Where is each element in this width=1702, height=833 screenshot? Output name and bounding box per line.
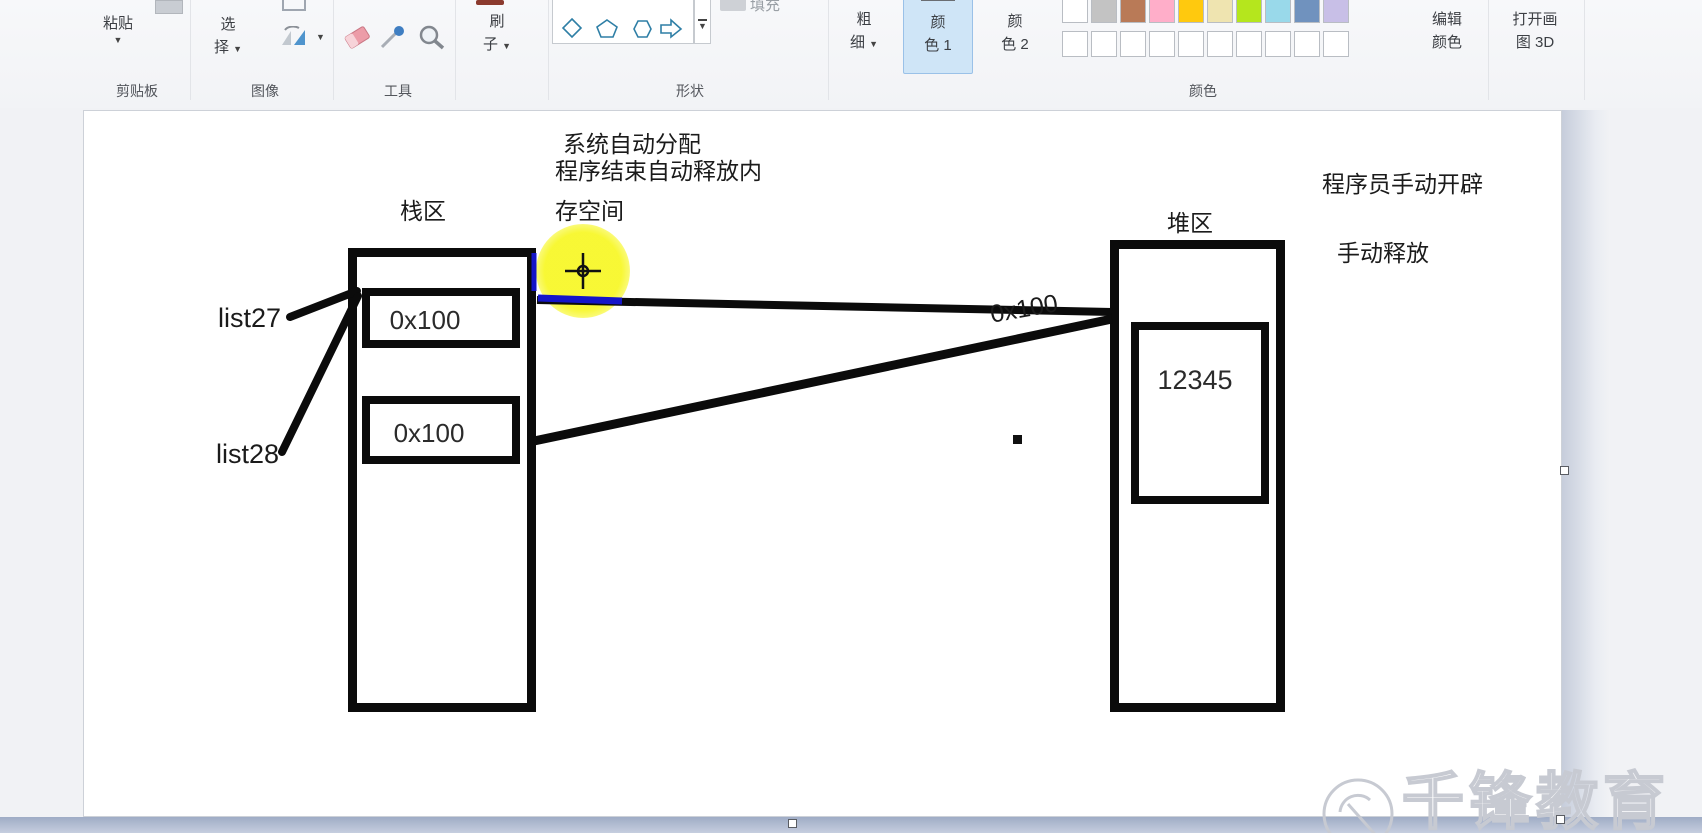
select-dropdown-arrow[interactable]: ▼ xyxy=(233,44,242,54)
palette-swatch[interactable] xyxy=(1178,31,1204,57)
palette-swatch[interactable] xyxy=(1091,0,1117,23)
canvas-resize-handle-bottom[interactable] xyxy=(788,819,797,828)
var-list28-label: list28 xyxy=(216,439,279,470)
palette-swatch[interactable] xyxy=(1236,31,1262,57)
group-separator xyxy=(1584,0,1585,100)
size-dropdown-arrow[interactable]: ▼ xyxy=(869,39,878,49)
palette-swatch[interactable] xyxy=(1236,0,1262,23)
paint-window: 粘贴 ▼ 剪贴板 选 择 ▼ ▼ 图像 xyxy=(0,0,1702,833)
palette-swatch[interactable] xyxy=(1207,0,1233,23)
color1-chip xyxy=(921,0,955,1)
shape-gallery-icons xyxy=(553,0,693,43)
canvas-resize-handle-right[interactable] xyxy=(1560,466,1569,475)
rotate-icon[interactable] xyxy=(279,26,313,48)
palette-swatch[interactable] xyxy=(1323,0,1349,23)
brush-dropdown-arrow[interactable]: ▼ xyxy=(502,41,511,51)
paste-label: 粘贴 xyxy=(103,15,133,32)
color2-label-line1: 颜 xyxy=(981,10,1049,31)
group-separator xyxy=(333,0,334,100)
stack-title: 栈区 xyxy=(400,192,446,226)
paste-dropdown-arrow[interactable]: ▼ xyxy=(88,35,148,45)
edit-colors-line1: 编辑 xyxy=(1432,11,1462,28)
paint-work-area xyxy=(0,108,1702,833)
watermark-logo-icon xyxy=(1318,774,1402,833)
magnifier-icon[interactable] xyxy=(418,25,448,51)
color1-button[interactable]: 颜 色 1 xyxy=(903,0,973,74)
palette-swatch[interactable] xyxy=(1120,0,1146,23)
palette-swatch[interactable] xyxy=(1062,31,1088,57)
eyedropper-icon[interactable] xyxy=(376,25,410,51)
palette-swatch[interactable] xyxy=(1091,31,1117,57)
edit-colors-button[interactable]: 编辑 颜色 xyxy=(1412,8,1482,54)
palette-row-2 xyxy=(1062,31,1349,57)
fill-label[interactable]: 填充 xyxy=(750,0,780,15)
note-auto-line3: 存空间 xyxy=(555,192,624,226)
open-paint3d-button[interactable]: 打开画 图 3D xyxy=(1494,8,1576,54)
group-separator xyxy=(455,0,456,100)
palette-swatch[interactable] xyxy=(1062,0,1088,23)
select-button[interactable]: 选 择 ▼ xyxy=(205,13,251,61)
shape-gallery[interactable] xyxy=(552,0,694,44)
brush-icon xyxy=(476,0,504,5)
palette-swatch[interactable] xyxy=(1207,31,1233,57)
tools-group-label: 工具 xyxy=(353,81,443,101)
group-separator xyxy=(1488,0,1489,100)
paint3d-line2: 图 3D xyxy=(1516,34,1554,51)
brush-label-line1: 刷 xyxy=(489,13,504,30)
note-manual-line1: 程序员手动开辟 xyxy=(1322,165,1483,199)
brush-label-line2: 子 xyxy=(483,36,498,53)
edit-colors-line2: 颜色 xyxy=(1432,34,1462,51)
color1-label-line2: 色 1 xyxy=(904,34,972,55)
palette-swatch[interactable] xyxy=(1178,0,1204,23)
heap-title: 堆区 xyxy=(1167,204,1213,238)
size-label-line1: 粗 xyxy=(856,11,871,28)
note-manual-line2: 手动释放 xyxy=(1337,234,1429,268)
color1-label-line1: 颜 xyxy=(904,11,972,32)
cursor-highlight xyxy=(536,224,630,318)
select-label-line2: 择 xyxy=(214,39,229,56)
group-separator xyxy=(190,0,191,100)
var-list27-label: list27 xyxy=(218,303,281,334)
canvas-right-margin xyxy=(1562,110,1610,817)
palette-swatch[interactable] xyxy=(1294,0,1320,23)
drawing-canvas[interactable] xyxy=(83,110,1562,817)
palette-swatch[interactable] xyxy=(1323,31,1349,57)
palette-row-1 xyxy=(1062,0,1349,23)
crop-icon[interactable] xyxy=(282,0,306,11)
size-button[interactable]: 粗 细 ▼ xyxy=(836,8,892,56)
palette-swatch[interactable] xyxy=(1294,31,1320,57)
color2-label-line2: 色 2 xyxy=(981,33,1049,54)
size-label-line2: 细 xyxy=(850,34,865,51)
ribbon-toolbar: 粘贴 ▼ 剪贴板 选 择 ▼ ▼ 图像 xyxy=(0,0,1702,109)
palette-swatch[interactable] xyxy=(1265,31,1291,57)
group-separator xyxy=(828,0,829,100)
canvas-resize-handle-corner[interactable] xyxy=(1556,815,1565,824)
palette-swatch[interactable] xyxy=(1149,31,1175,57)
colors-group-label: 颜色 xyxy=(1158,81,1248,101)
brush-button[interactable]: 刷 子 ▼ xyxy=(474,10,520,58)
heap-value: 12345 xyxy=(1140,365,1250,396)
color2-button[interactable]: 颜 色 2 xyxy=(981,0,1049,72)
stack-cell2-value: 0x100 xyxy=(374,418,484,449)
clipboard-group-label: 剪贴板 xyxy=(92,81,182,101)
paste-button[interactable]: 粘贴 ▼ xyxy=(88,12,148,45)
image-group-label: 图像 xyxy=(220,81,310,101)
select-label-line1: 选 xyxy=(220,16,235,33)
paste-special-icon[interactable] xyxy=(155,0,183,14)
shapes-group-label: 形状 xyxy=(645,81,735,101)
shapes-more-button[interactable]: ▼ xyxy=(694,0,711,44)
watermark: 千锋教育 xyxy=(1318,768,1670,833)
watermark-text: 千锋教育 xyxy=(1402,768,1670,833)
group-separator xyxy=(548,0,549,100)
note-auto-line2: 程序结束自动释放内 xyxy=(555,152,762,186)
fill-icon[interactable] xyxy=(720,0,746,11)
paint3d-line1: 打开画 xyxy=(1512,11,1557,28)
palette-swatch[interactable] xyxy=(1265,0,1291,23)
palette-swatch[interactable] xyxy=(1120,31,1146,57)
rotate-dropdown-arrow[interactable]: ▼ xyxy=(316,32,325,42)
eraser-icon[interactable] xyxy=(340,25,374,49)
palette-swatch[interactable] xyxy=(1149,0,1175,23)
stack-cell1-value: 0x100 xyxy=(370,305,480,336)
